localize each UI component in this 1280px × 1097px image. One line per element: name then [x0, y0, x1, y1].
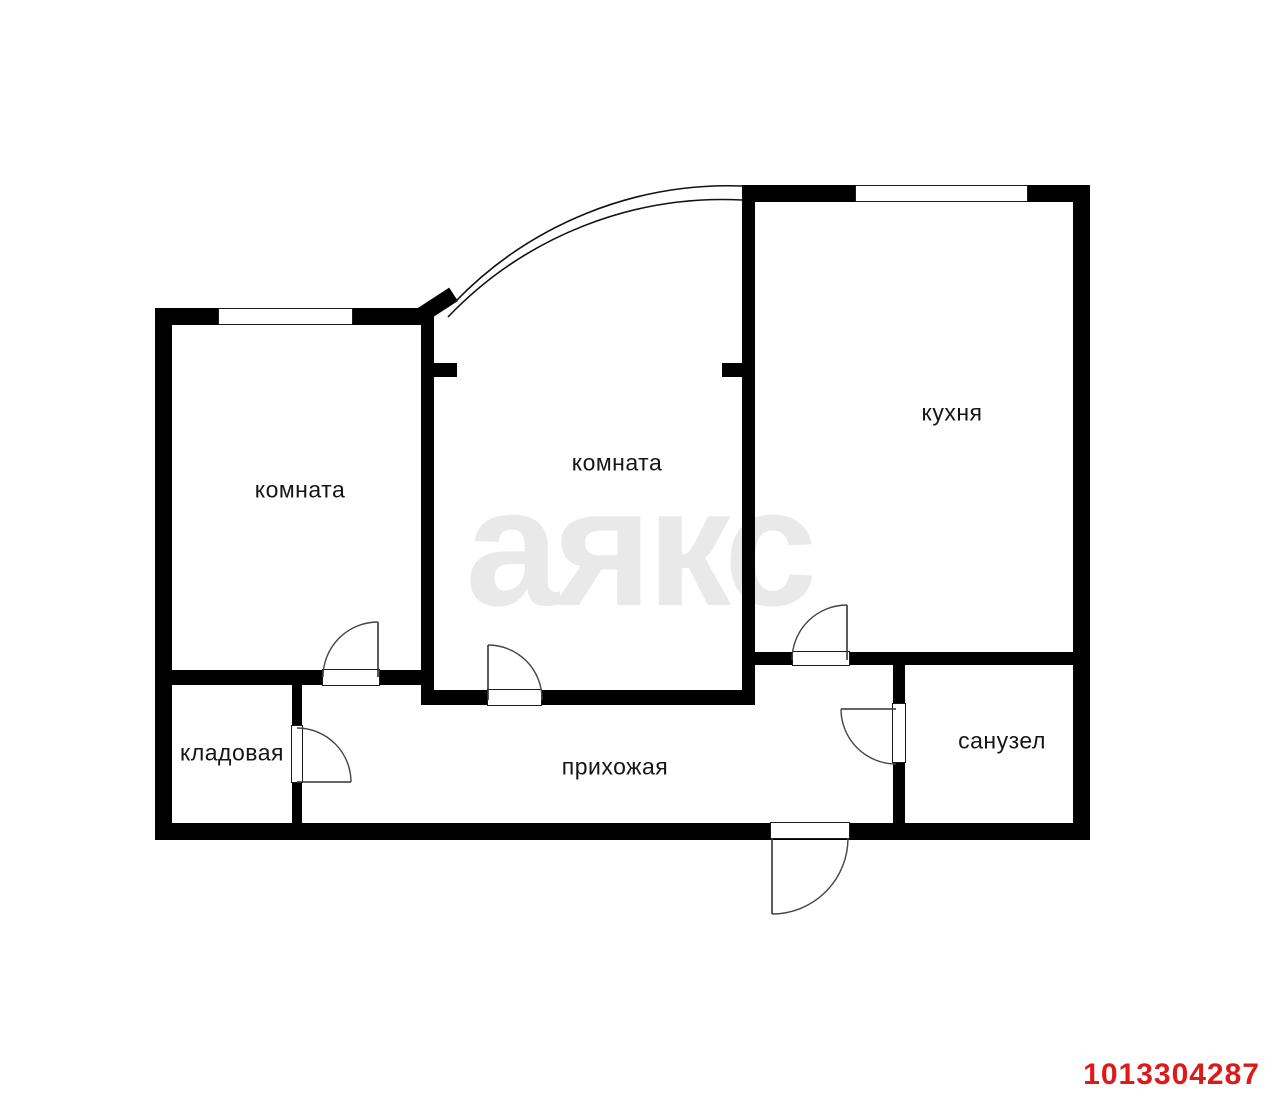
door-threshold-left-room — [322, 669, 380, 686]
window-left-room — [218, 308, 353, 325]
bay-window-inner-line — [448, 200, 742, 317]
floor-plan: аякс — [0, 0, 1280, 1097]
room-label-kitchen: кухня — [922, 400, 983, 427]
wall-middle-room-bottom — [421, 690, 755, 705]
wall-rooms-divider — [421, 308, 434, 705]
door-threshold-bathroom — [892, 703, 906, 763]
door-threshold-middle-room — [487, 689, 542, 706]
window-kitchen — [855, 185, 1028, 202]
listing-id: 1013304287 — [1083, 1058, 1260, 1092]
agency-watermark: аякс — [466, 463, 813, 631]
entrance-threshold — [770, 822, 850, 839]
room-label-hallway: прихожая — [562, 754, 669, 781]
bay-window-outer-line — [455, 186, 742, 302]
door-threshold-kitchen — [792, 651, 850, 666]
wall-outer-left — [155, 308, 172, 840]
room-label-middle: комната — [572, 450, 662, 477]
room-label-left: комната — [255, 477, 345, 504]
room-label-storage: кладовая — [180, 740, 284, 767]
door-threshold-storage — [291, 725, 303, 783]
wall-outer-bottom — [155, 823, 1090, 840]
door-arc-bathroom — [841, 709, 896, 764]
room-label-bathroom: санузел — [958, 728, 1046, 755]
wall-outer-right — [1073, 185, 1090, 840]
wall-bay-stub-left — [434, 363, 457, 377]
wall-kitchen-divider — [742, 202, 755, 705]
door-arc-entrance — [772, 838, 848, 914]
wall-bay-stub-right — [722, 363, 742, 377]
wall-bay-diagonal — [412, 288, 458, 325]
door-arc-storage — [297, 728, 351, 782]
wall-left-room-bottom — [155, 670, 434, 685]
